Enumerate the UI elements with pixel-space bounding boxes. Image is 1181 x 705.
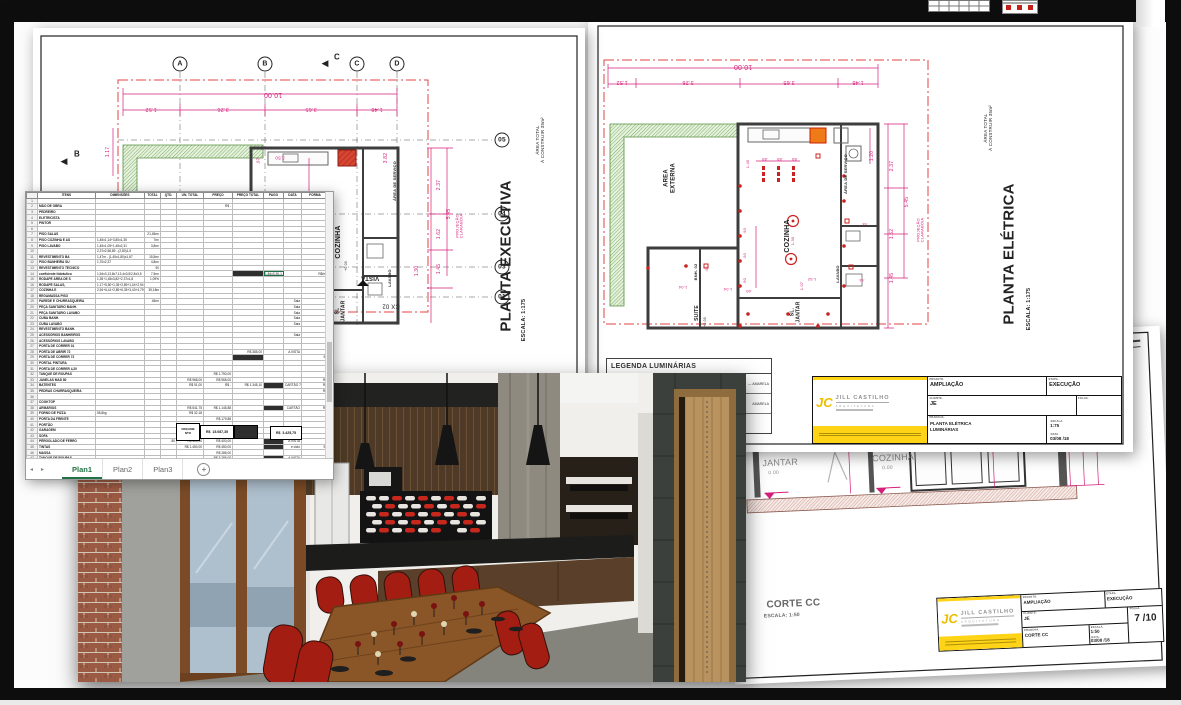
plan-label: 1.52 <box>808 277 817 281</box>
field-label-escala: ESCALA. <box>1091 626 1104 630</box>
field-label-projeto: PROJETO. <box>929 378 944 381</box>
plan-label: 3.82 <box>384 153 390 164</box>
plan-label: 2.37 <box>437 180 443 191</box>
peek-table-icon <box>928 0 990 12</box>
plan-label: SL. JANTAR <box>790 301 801 322</box>
plan-label: 1.30 <box>415 266 421 277</box>
total-value-box: R$ 15.087,35 <box>200 425 234 439</box>
logo-phone-line <box>961 623 999 626</box>
projeto-value: AMPLIAÇÃO <box>930 382 1044 388</box>
grill-symbol <box>338 150 356 166</box>
plan-label: .64 <box>859 277 864 281</box>
spreadsheet-window: ITENSDIMENSÕESTOTALQTD.UN. TOTALPREÇOPRE… <box>25 191 334 480</box>
plan-label: 1.48 <box>852 79 864 85</box>
sheet-tab-plan2[interactable]: Plan2 <box>103 459 143 479</box>
plan-label: 2.37 <box>890 161 896 172</box>
plan-label: A <box>173 57 188 72</box>
cell[interactable]: CARTÃO <box>284 405 302 411</box>
plan-label: 3.65 <box>305 106 317 112</box>
plan-label: PLANTA EXECUTIVA <box>499 180 516 331</box>
plan-label: 1.52 <box>616 79 628 85</box>
plan-label: LAVABO <box>836 265 840 283</box>
plan-label: 1.17 <box>106 147 112 158</box>
prancha-value-line1: PLANTA ELÉTRICA <box>930 421 1044 426</box>
field-label-folha: FOLHA. <box>1130 607 1141 610</box>
plan-label: .90 <box>743 278 747 284</box>
add-sheet-button[interactable]: + <box>197 463 210 476</box>
plan-label: .60 <box>746 289 752 293</box>
plan-label: ◀ <box>321 58 328 68</box>
cliente-value: JE <box>930 401 1074 407</box>
plan-label: COZINHA <box>335 225 343 258</box>
field-label-data: DATA. <box>1091 636 1100 639</box>
logo-monogram: JC <box>816 396 833 409</box>
total-value2-box: R$ 3.425,75 <box>270 426 302 440</box>
plan-label: .90 <box>743 228 747 234</box>
field-label-projeto: PROJETO. <box>1023 595 1038 599</box>
plan-label: .90 <box>743 253 747 259</box>
plan-label: .89 <box>777 157 783 161</box>
plan-label: 1.45 <box>437 264 443 275</box>
plan-label: .65 <box>706 266 710 271</box>
plan-label: 3.65 <box>783 79 795 85</box>
legend-entry: AMARELA <box>752 402 769 406</box>
render-right-wall <box>653 373 746 682</box>
plan-label: ÁREA DE SERVIÇO <box>844 154 848 194</box>
plan-label: PROJEÇÃO CLARABÓIA <box>917 218 926 243</box>
electrical-symbols <box>646 154 853 328</box>
plan-label: 1.30 <box>791 237 795 246</box>
titleblock-corte: JC JILL CASTILHO ARQUITETURA PROJETO. AM… <box>936 588 1164 652</box>
plan-label: .64 <box>862 221 867 225</box>
plan-label: 5.45 <box>905 197 911 208</box>
logo-tagline: ARQUITETURA <box>836 404 890 408</box>
plan-label: PLANTA ELÉTRICA <box>1002 183 1019 324</box>
plan-label: +0.00 <box>704 317 708 327</box>
field-label-escala: ESCALA. <box>1051 420 1064 423</box>
plan-label: JANTAR <box>762 457 798 469</box>
logo-phone-line <box>836 409 874 411</box>
total-hash-box: ######## <box>234 425 258 439</box>
plan-label: 1.04 <box>724 287 733 291</box>
cell[interactable]: 1,17+5,50+1,35+2,89+1,04+2,94 <box>96 282 145 288</box>
scrollbar-thumb[interactable] <box>327 342 332 402</box>
plan-label: 1.20 <box>870 151 876 162</box>
jill-castilho-logo: JC JILL CASTILHO ARQUITETURA <box>937 595 1023 651</box>
jill-castilho-logo: JC JILL CASTILHO ARQUITETURA <box>813 377 928 443</box>
plan-label: 1.52 <box>145 106 157 112</box>
field-label-cliente: CLIENTE. <box>929 397 942 400</box>
field-label-etapa: ETAPA. <box>1106 591 1116 594</box>
plan-label: ÁREA DE SERVIÇO <box>393 161 397 201</box>
titleblock-eletrica: JC JILL CASTILHO ARQUITETURA PROJETO. AM… <box>812 376 1122 444</box>
peek-sheet-corner <box>1136 0 1165 27</box>
plan-label: 3.26 <box>682 79 694 85</box>
plan-label: 10.00 <box>264 90 283 98</box>
sheet-tab-plan3[interactable]: Plan3 <box>143 459 183 479</box>
prancha-value-line2: LUMINÁRIAS <box>930 427 1044 432</box>
plan-label: 0.00 <box>882 466 893 472</box>
plan-label: +0.00 <box>345 261 349 271</box>
plan-label: 1.48 <box>371 106 383 112</box>
plan-label: B <box>258 57 273 72</box>
cell[interactable]: 2,94+6,41+2,89+6,35+3,43+4,79+6,5 <box>96 288 145 294</box>
field-label-folha: FOLHA. <box>1078 397 1089 400</box>
escala-value: 1:75 <box>1050 423 1119 428</box>
render-mosaic-backsplash <box>360 491 492 543</box>
sheet-tab-plan1[interactable]: Plan1 <box>62 459 103 479</box>
plan-label: .89 <box>762 157 768 161</box>
plan-label: CX 02 <box>382 302 400 309</box>
bottom-light-edge <box>0 700 1181 705</box>
green-hatch-wall <box>610 124 738 306</box>
plan-label: 0.00 <box>768 471 779 477</box>
etapa-value: EXECUÇÃO <box>1049 382 1119 388</box>
cell[interactable]: 1,54x3,13,8x7,13,4x3,5/2,8x3,5 <box>96 271 145 277</box>
legend-entry: — AMARELA <box>748 382 769 386</box>
plan-label: D <box>390 57 405 72</box>
plan-label: 10.00 <box>734 62 753 70</box>
plan-label: AREA EXTERNA <box>663 163 676 193</box>
plan-label: PROJEÇÃO CLARABÓIA <box>456 214 465 239</box>
peek-redgrid-icon <box>1002 0 1038 14</box>
plan-label: 3.50 <box>275 155 285 160</box>
plan-label: ÁREA TOTAL À CONSTRUIR 35m² <box>535 117 545 163</box>
plan-label: ESCALA: 1:175 <box>1026 288 1032 331</box>
etapa-value: EXECUÇÃO <box>1107 594 1160 601</box>
plan-label: .97 <box>255 158 260 165</box>
plan-label: ESCALA: 1:175 <box>521 299 527 342</box>
field-label-cliente: CLIENTE. <box>1023 612 1037 616</box>
cliente-value: JE <box>1024 612 1126 621</box>
plan-label: LAVABO <box>388 269 392 287</box>
field-label-etapa: ETAPA. <box>1049 378 1059 381</box>
field-label-prancha: PRANCHA. <box>929 416 944 419</box>
cell[interactable]: CARTÃO 7X90 <box>284 383 302 389</box>
plan-label: 1.62 <box>890 229 896 240</box>
plan-label: 5.45 <box>447 209 453 220</box>
plan-label: SL JANTAR <box>335 300 346 321</box>
plan-label: C <box>334 54 340 63</box>
plan-label: 1.45 <box>890 273 896 284</box>
plan-label: ◀ <box>60 156 67 166</box>
vista-arrow <box>357 280 369 286</box>
cell[interactable]: 21,45m² <box>145 232 161 238</box>
plan-label: COZINHA <box>872 452 914 464</box>
logo-address-band <box>939 634 1022 651</box>
plan-label: B <box>74 151 80 160</box>
total-label-box: ORÇAME NTO <box>176 423 200 441</box>
plan-label: 1.45 <box>746 160 750 169</box>
screenshot-collage: JC JILL CASTILHO ARQUITETURA PROJETO. AM… <box>0 0 1181 705</box>
logo-address-band <box>813 426 927 443</box>
folha-value: 7 /10 <box>1130 612 1160 624</box>
cooktop-symbol <box>810 128 826 143</box>
logo-company-name: JILL CASTILHO <box>836 395 890 403</box>
plan-label: .89 <box>792 157 798 161</box>
plan-label: C <box>350 57 365 72</box>
sheet-tab-bar: ◂ ▸ Plan1 Plan2 Plan3 + <box>26 458 333 479</box>
plan-label: 1.62 <box>437 229 443 240</box>
column-header: PREÇO TOTAL <box>233 193 264 199</box>
plan-label: CORTE CC <box>766 597 820 611</box>
plan-label: 1.07 <box>800 282 804 291</box>
tab-nav-right[interactable]: ▸ <box>37 466 48 473</box>
plan-label: 05 <box>495 133 510 148</box>
plan-label: 1.04 <box>679 285 688 289</box>
plan-label: VISTA <box>361 274 379 281</box>
plan-label: SUITE <box>695 305 701 321</box>
cell[interactable]: 1.84x3.26-1.84x7,25 <box>264 271 284 277</box>
plan-label: ÁREA TOTAL À CONSTRUIR 35m² <box>983 105 993 151</box>
data-value: 03/08 /18 <box>1050 436 1119 441</box>
legend-title: LEGENDA LUMINÁRIAS <box>607 359 771 374</box>
tab-nav-left[interactable]: ◂ <box>26 466 37 473</box>
plan-label: 3.26 <box>217 106 229 112</box>
vertical-scrollbar[interactable] <box>325 192 333 459</box>
logo-monogram: JC <box>941 612 958 626</box>
eletrica-dimension-lines <box>608 64 908 328</box>
plan-label: BNH. 02 <box>694 264 698 281</box>
field-label-data: DATA. <box>1051 433 1060 436</box>
